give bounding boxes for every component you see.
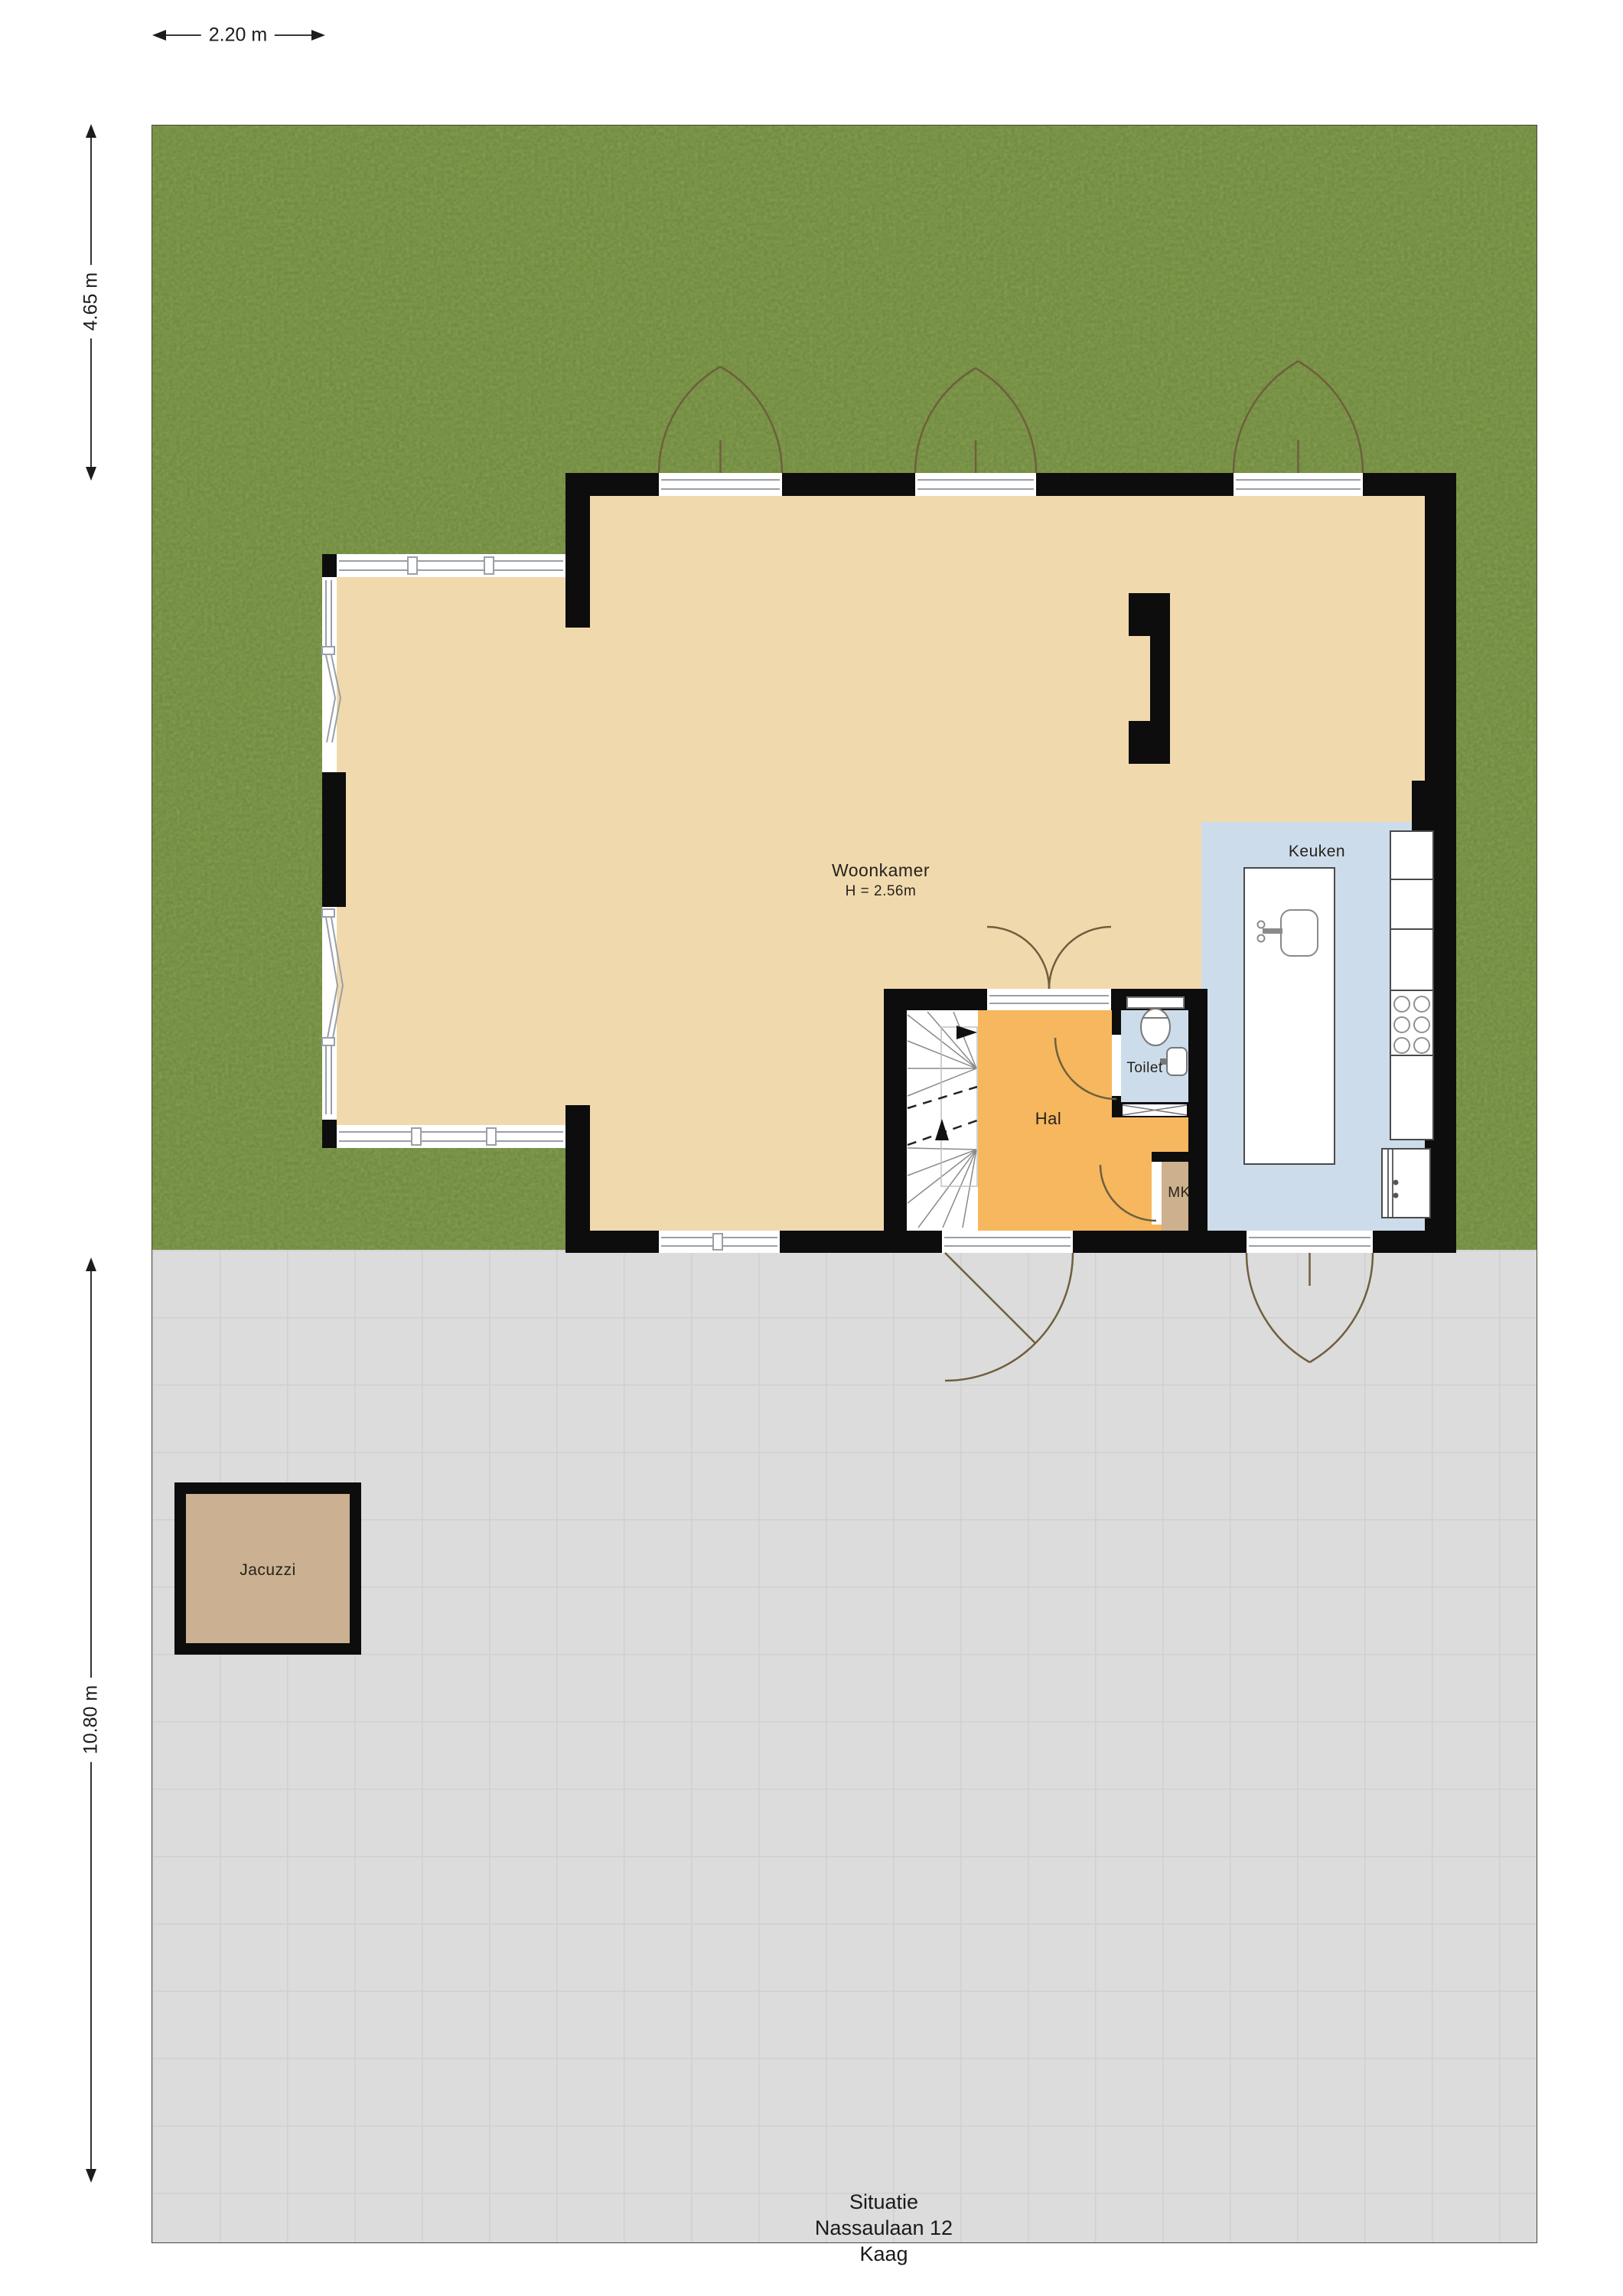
hal-kitchen-wall (1188, 1010, 1207, 1231)
dimension-left-lower: 10.80 m (80, 1678, 103, 1762)
bay-window-left-upper (322, 577, 337, 772)
toilet-left-wall-upper (1112, 1010, 1121, 1035)
front-door-opening (942, 1231, 1073, 1253)
bay-post-bottom (322, 1120, 337, 1148)
mk-door-opening (1152, 1162, 1162, 1225)
bay-pillar (322, 772, 346, 907)
kitchen-appliance (1381, 1148, 1431, 1218)
floorplan-canvas: Jacuzzi (0, 0, 1623, 2296)
keuken-label: Keuken (1289, 843, 1345, 861)
wall-left-upper-corner (565, 473, 590, 628)
title-block: Situatie Nassaulaan 12 Kaag (777, 2189, 991, 2267)
woonkamer-floor-extension (337, 577, 590, 1125)
hal-door-opening (987, 989, 1111, 1010)
toilet-door-opening (1112, 1035, 1121, 1096)
terrace-door-opening (1247, 1231, 1373, 1253)
chimney-bar (1150, 593, 1170, 764)
wall-top-3 (1036, 473, 1234, 496)
bay-post-top (322, 554, 337, 577)
island-sink (1280, 909, 1318, 957)
wall-bottom-4 (1373, 1231, 1456, 1253)
toilet-basin (1166, 1047, 1188, 1076)
woonkamer-height: H = 2.56m (832, 883, 930, 900)
wall-left-lower-corner (565, 1105, 590, 1253)
jacuzzi-label: Jacuzzi (240, 1561, 296, 1580)
bay-window-bottom (337, 1125, 565, 1148)
hal-label: Hal (1035, 1109, 1062, 1129)
kitchen-counter (1390, 830, 1434, 1140)
toilet-label: Toilet (1126, 1060, 1162, 1077)
title-line-3: Kaag (777, 2241, 991, 2267)
toilet-vent-window (1123, 1104, 1187, 1116)
toilet-cistern (1126, 996, 1185, 1009)
mk-top-wall (1152, 1152, 1188, 1162)
garden-door-opening-3 (1234, 473, 1363, 496)
wall-bottom-2 (780, 1231, 942, 1253)
hal-top-wall-left (884, 989, 987, 1010)
title-line-1: Situatie (777, 2189, 991, 2215)
bottom-window (659, 1231, 780, 1253)
stairs-floor (907, 1010, 978, 1231)
bay-window-left-lower (322, 907, 337, 1120)
woonkamer-label: Woonkamer H = 2.56m (832, 860, 930, 900)
wall-bottom-3 (1073, 1231, 1247, 1253)
dimension-top: 2.20 m (201, 24, 275, 47)
dimension-left-upper: 4.65 m (80, 265, 103, 338)
pavement-area (152, 1250, 1537, 2242)
chimney-stub-top (1129, 593, 1150, 636)
mk-label: MK (1168, 1185, 1191, 1202)
wall-top-2 (782, 473, 915, 496)
woonkamer-name: Woonkamer (832, 860, 930, 881)
garden-door-opening-2 (915, 473, 1036, 496)
kitchen-wall-jog (1412, 781, 1425, 830)
chimney-stub-bottom (1129, 721, 1150, 764)
stairs-left-wall (884, 1010, 907, 1231)
garden-door-opening-1 (659, 473, 782, 496)
title-line-2: Nassaulaan 12 (777, 2215, 991, 2241)
bay-window-top (337, 554, 565, 577)
